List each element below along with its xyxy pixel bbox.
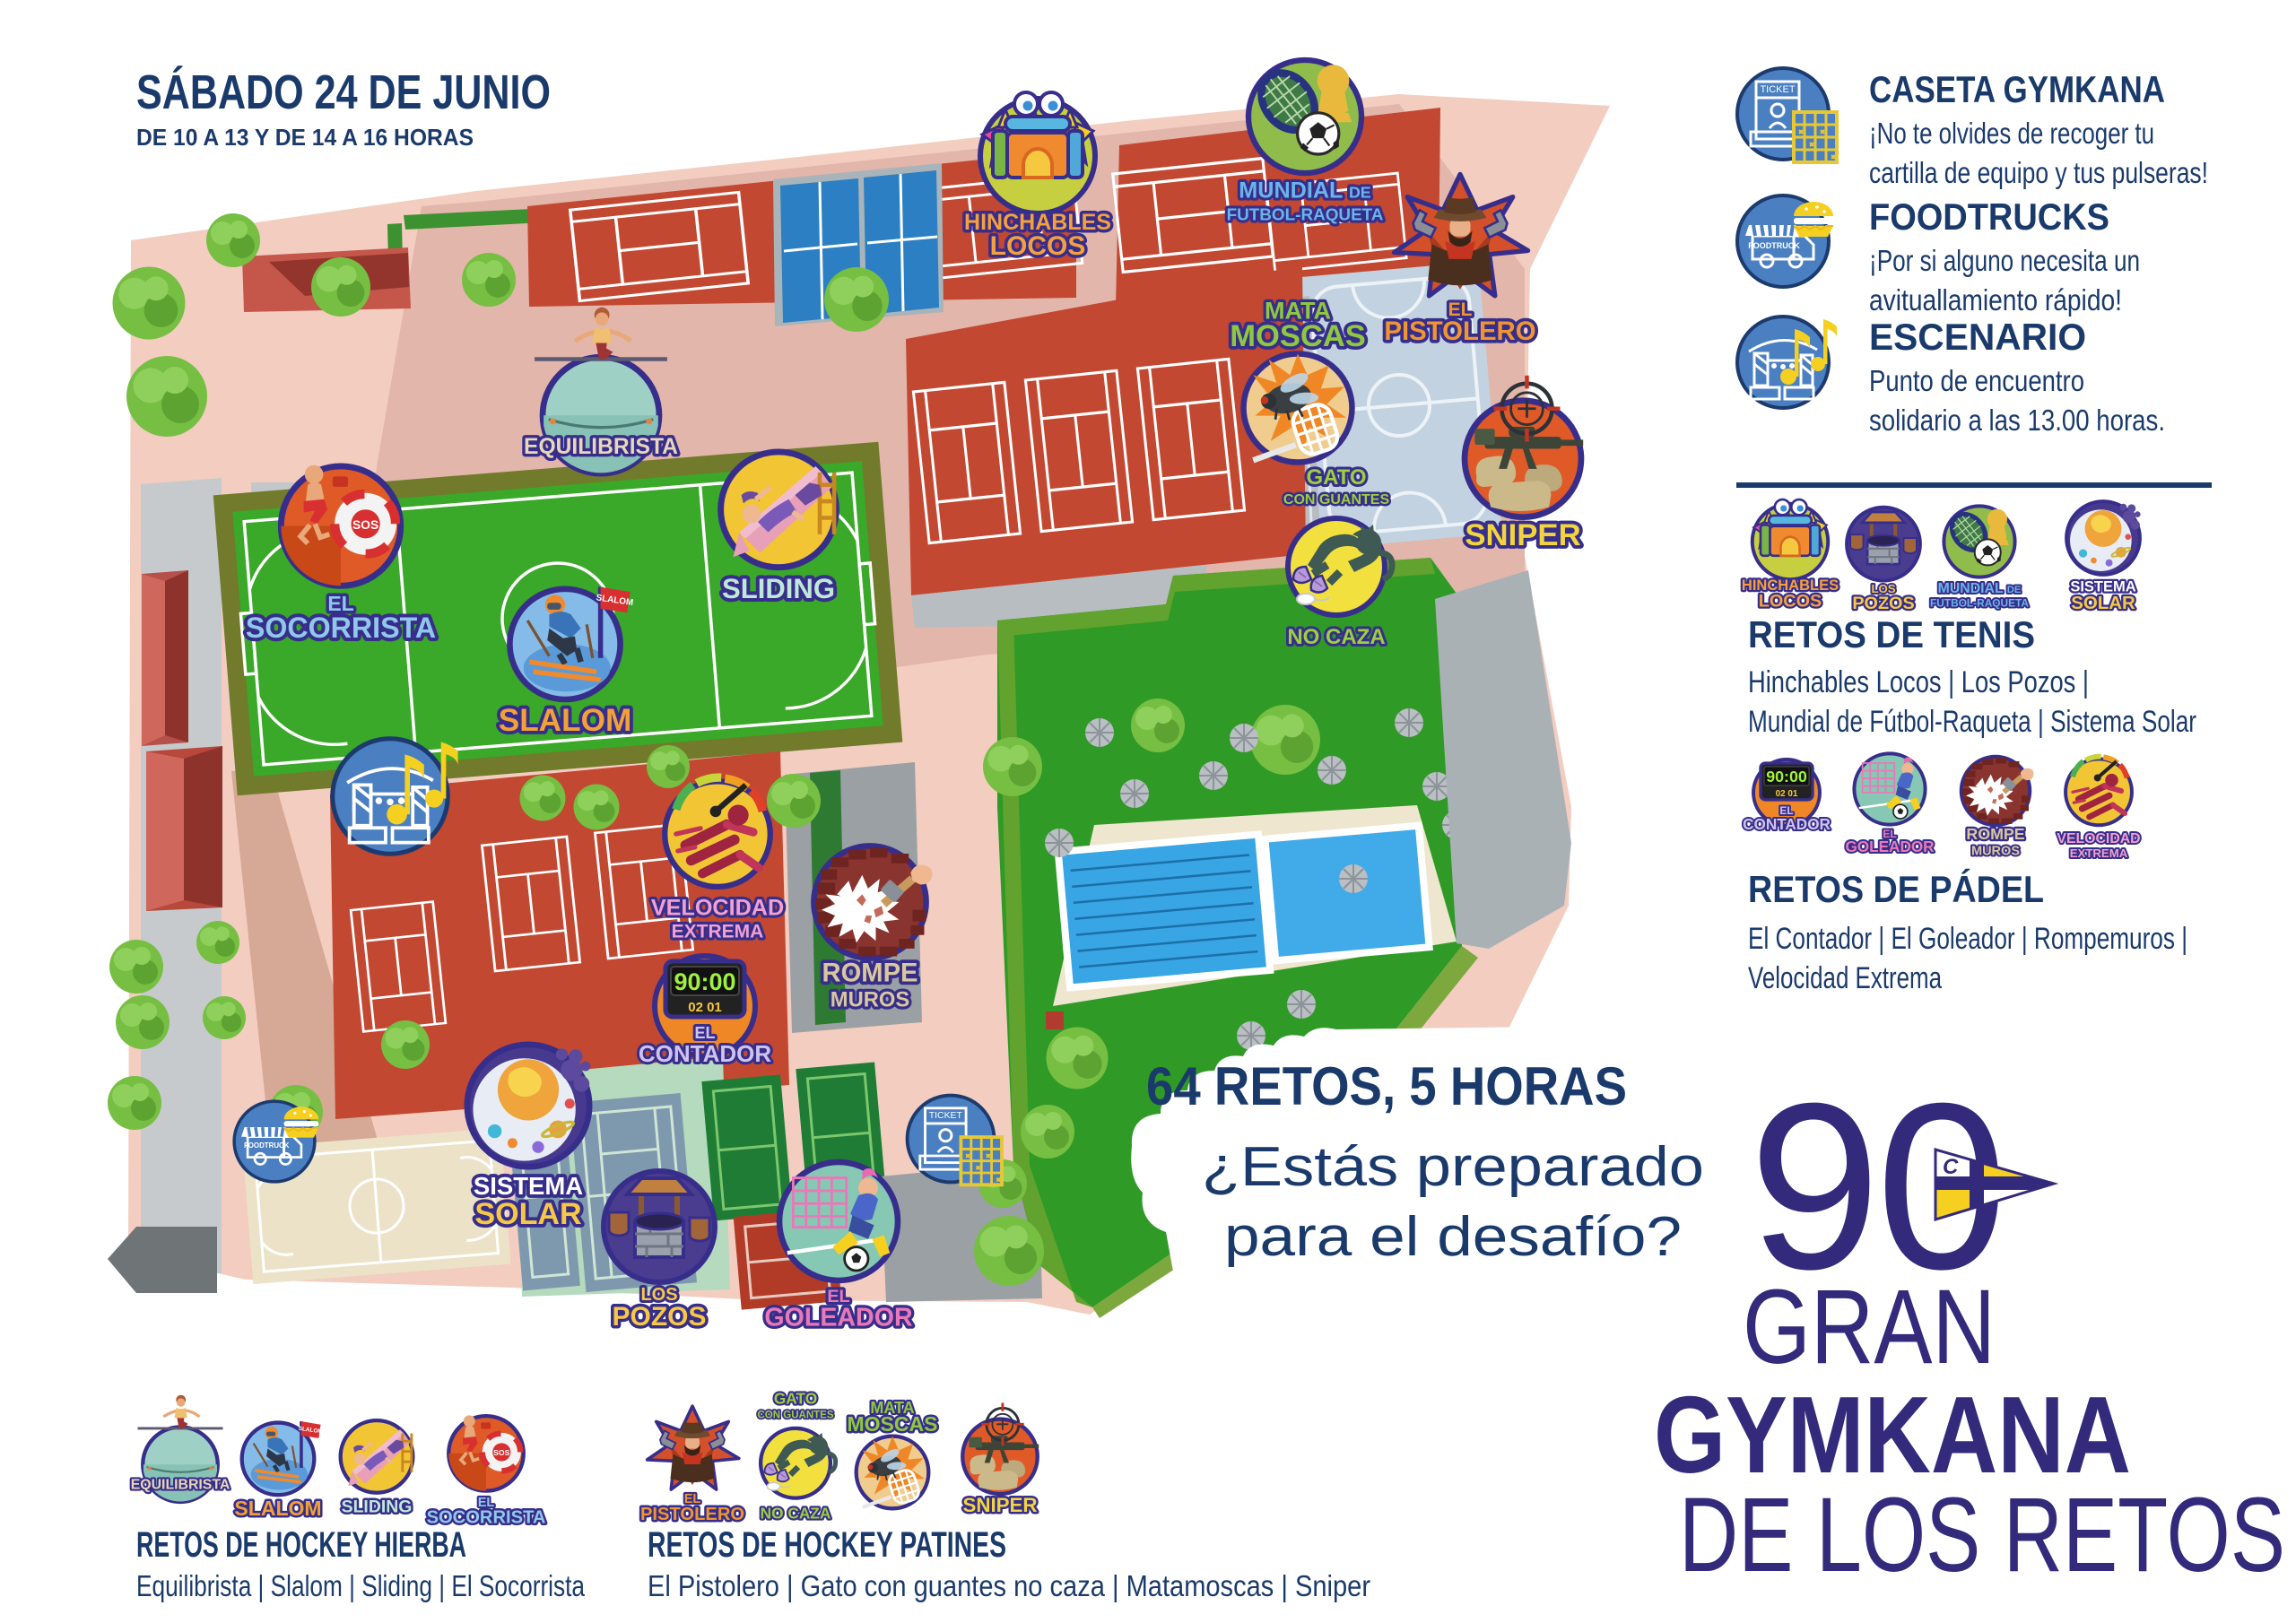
svg-text:Mundial de Fútbol-Raqueta | Si: Mundial de Fútbol-Raqueta | Sistema Sola… xyxy=(1748,705,2196,739)
svg-text:para el desafío?: para el desafío? xyxy=(1224,1206,1682,1268)
svg-text:Equilibrista | Slalom | Slidin: Equilibrista | Slalom | Sliding | El Soc… xyxy=(136,1569,586,1602)
svg-text:¿Estás preparado: ¿Estás preparado xyxy=(1202,1136,1704,1198)
svg-text:cartilla de equipo y tus pulse: cartilla de equipo y tus pulseras! xyxy=(1869,156,2208,189)
svg-text:Hinchables Locos | Los Pozos |: Hinchables Locos | Los Pozos | xyxy=(1748,665,2089,699)
svg-text:RETOS DE TENIS: RETOS DE TENIS xyxy=(1748,613,2035,655)
svg-text:DE LOS RETOS: DE LOS RETOS xyxy=(1679,1476,2285,1594)
svg-text:Velocidad Extrema: Velocidad Extrema xyxy=(1748,961,1942,995)
svg-text:GRAN: GRAN xyxy=(1743,1268,1996,1386)
svg-text:FOODTRUCKS: FOODTRUCKS xyxy=(1869,195,2109,238)
svg-text:CASETA GYMKANA: CASETA GYMKANA xyxy=(1869,68,2165,110)
svg-text:solidario a las 13.00 horas.: solidario a las 13.00 horas. xyxy=(1869,404,2165,437)
svg-text:¡Por si alguno necesita un: ¡Por si alguno necesita un xyxy=(1869,244,2140,277)
svg-text:RETOS DE HOCKEY HIERBA: RETOS DE HOCKEY HIERBA xyxy=(136,1525,466,1565)
svg-text:RETOS DE HOCKEY PATINES: RETOS DE HOCKEY PATINES xyxy=(648,1525,1006,1565)
svg-text:RETOS DE PÁDEL: RETOS DE PÁDEL xyxy=(1748,868,2044,910)
svg-text:DE 10 A 13 Y DE 14 A 16 HORAS: DE 10 A 13 Y DE 14 A 16 HORAS xyxy=(136,124,474,151)
svg-text:C: C xyxy=(1943,1155,1959,1179)
svg-text:ESCENARIO: ESCENARIO xyxy=(1869,316,2086,358)
svg-text:El Pistolero | Gato con guante: El Pistolero | Gato con guantes no caza … xyxy=(648,1569,1370,1602)
svg-text:¡No te olvides de recoger tu: ¡No te olvides de recoger tu xyxy=(1869,117,2154,150)
svg-text:El Contador | El Goleador | Ro: El Contador | El Goleador | Rompemuros | xyxy=(1748,922,2187,956)
svg-text:Punto de encuentro: Punto de encuentro xyxy=(1869,364,2084,397)
svg-text:SÁBADO 24 DE JUNIO: SÁBADO 24 DE JUNIO xyxy=(136,65,551,119)
svg-text:avituallamiento rápido!: avituallamiento rápido! xyxy=(1869,283,2122,317)
svg-text:64 RETOS, 5 HORAS: 64 RETOS, 5 HORAS xyxy=(1146,1056,1627,1116)
